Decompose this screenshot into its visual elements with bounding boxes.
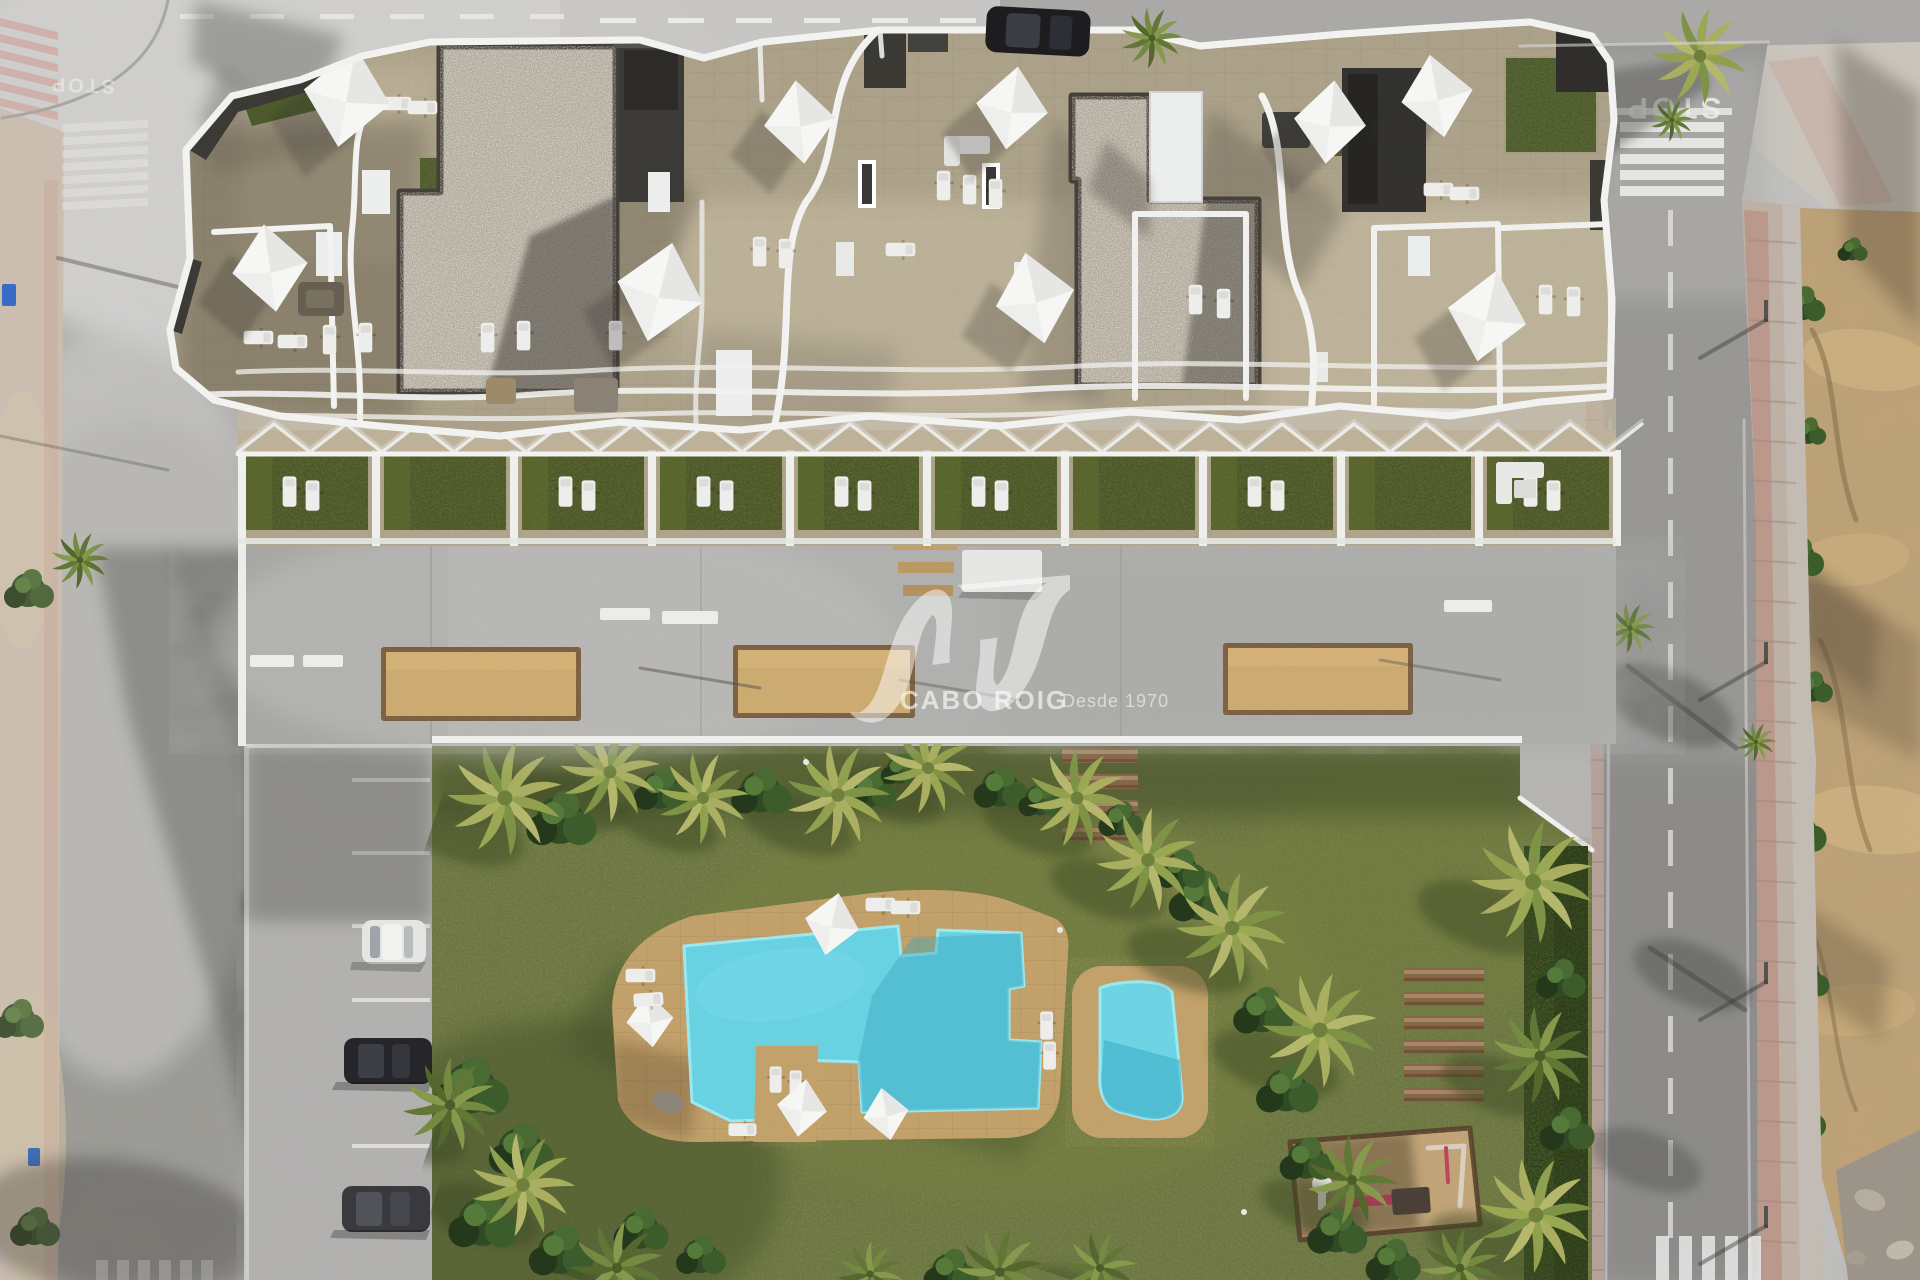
svg-text:Desde 1970: Desde 1970 [1062,691,1169,711]
svg-text:STOP: STOP [49,73,116,97]
svg-text:CABO ROIG: CABO ROIG [900,685,1068,715]
